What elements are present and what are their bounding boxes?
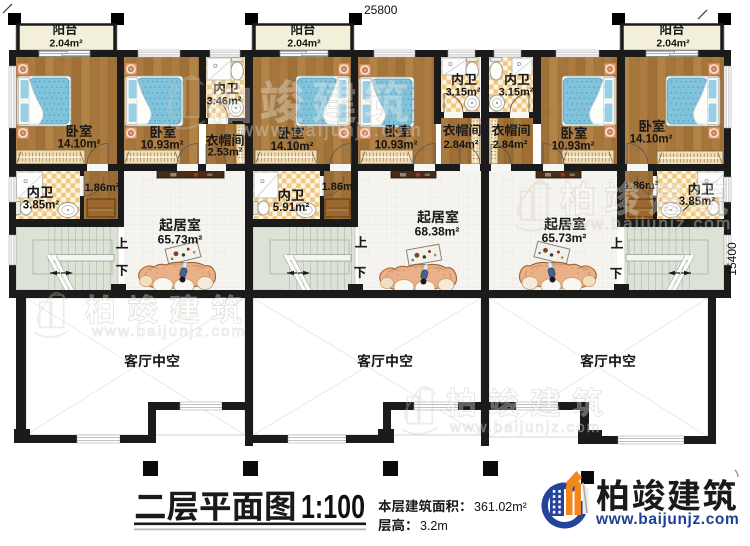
svg-text:www.baijunjz.com: www.baijunjz.com bbox=[449, 419, 601, 436]
svg-text:1.86m²: 1.86m² bbox=[322, 181, 357, 193]
svg-text:15400: 15400 bbox=[725, 242, 739, 276]
svg-text:65.73m²: 65.73m² bbox=[542, 231, 587, 245]
svg-text:3.15m²: 3.15m² bbox=[446, 87, 481, 99]
svg-text:www.baijunjz.com: www.baijunjz.com bbox=[239, 120, 423, 140]
svg-text:1:100: 1:100 bbox=[301, 488, 365, 525]
svg-text:3.2m: 3.2m bbox=[420, 519, 448, 533]
svg-text:25800: 25800 bbox=[364, 3, 398, 17]
svg-text:1.86m²: 1.86m² bbox=[85, 182, 120, 194]
svg-text:2.84m²: 2.84m² bbox=[444, 139, 479, 151]
svg-text:10.93m²: 10.93m² bbox=[375, 140, 418, 152]
svg-text:65.73m²: 65.73m² bbox=[158, 233, 203, 247]
svg-text:3.85m²: 3.85m² bbox=[23, 200, 60, 212]
svg-text:10.93m²: 10.93m² bbox=[141, 140, 184, 152]
svg-text:2.04m²: 2.04m² bbox=[287, 38, 321, 50]
svg-text:3.15m²: 3.15m² bbox=[499, 87, 534, 99]
svg-text:14.10m²: 14.10m² bbox=[58, 139, 101, 151]
svg-text:www.baijunjz.com: www.baijunjz.com bbox=[91, 323, 246, 340]
svg-text:2.04m²: 2.04m² bbox=[49, 38, 83, 50]
svg-text:2.53m²: 2.53m² bbox=[208, 147, 243, 159]
svg-text:10.93m²: 10.93m² bbox=[552, 141, 595, 153]
svg-text:www.baijunjz.com: www.baijunjz.com bbox=[561, 214, 732, 233]
svg-text:2.04m²: 2.04m² bbox=[656, 38, 690, 50]
svg-text:www.baijunjz.com: www.baijunjz.com bbox=[595, 511, 739, 528]
svg-text:2.84m²: 2.84m² bbox=[493, 139, 528, 151]
svg-text:14.10m²: 14.10m² bbox=[630, 134, 673, 146]
svg-text:5.91m²: 5.91m² bbox=[273, 202, 310, 214]
svg-text:361.02m²: 361.02m² bbox=[474, 500, 527, 514]
svg-text:68.38m²: 68.38m² bbox=[415, 225, 460, 239]
svg-text:14.10m²: 14.10m² bbox=[271, 141, 314, 153]
